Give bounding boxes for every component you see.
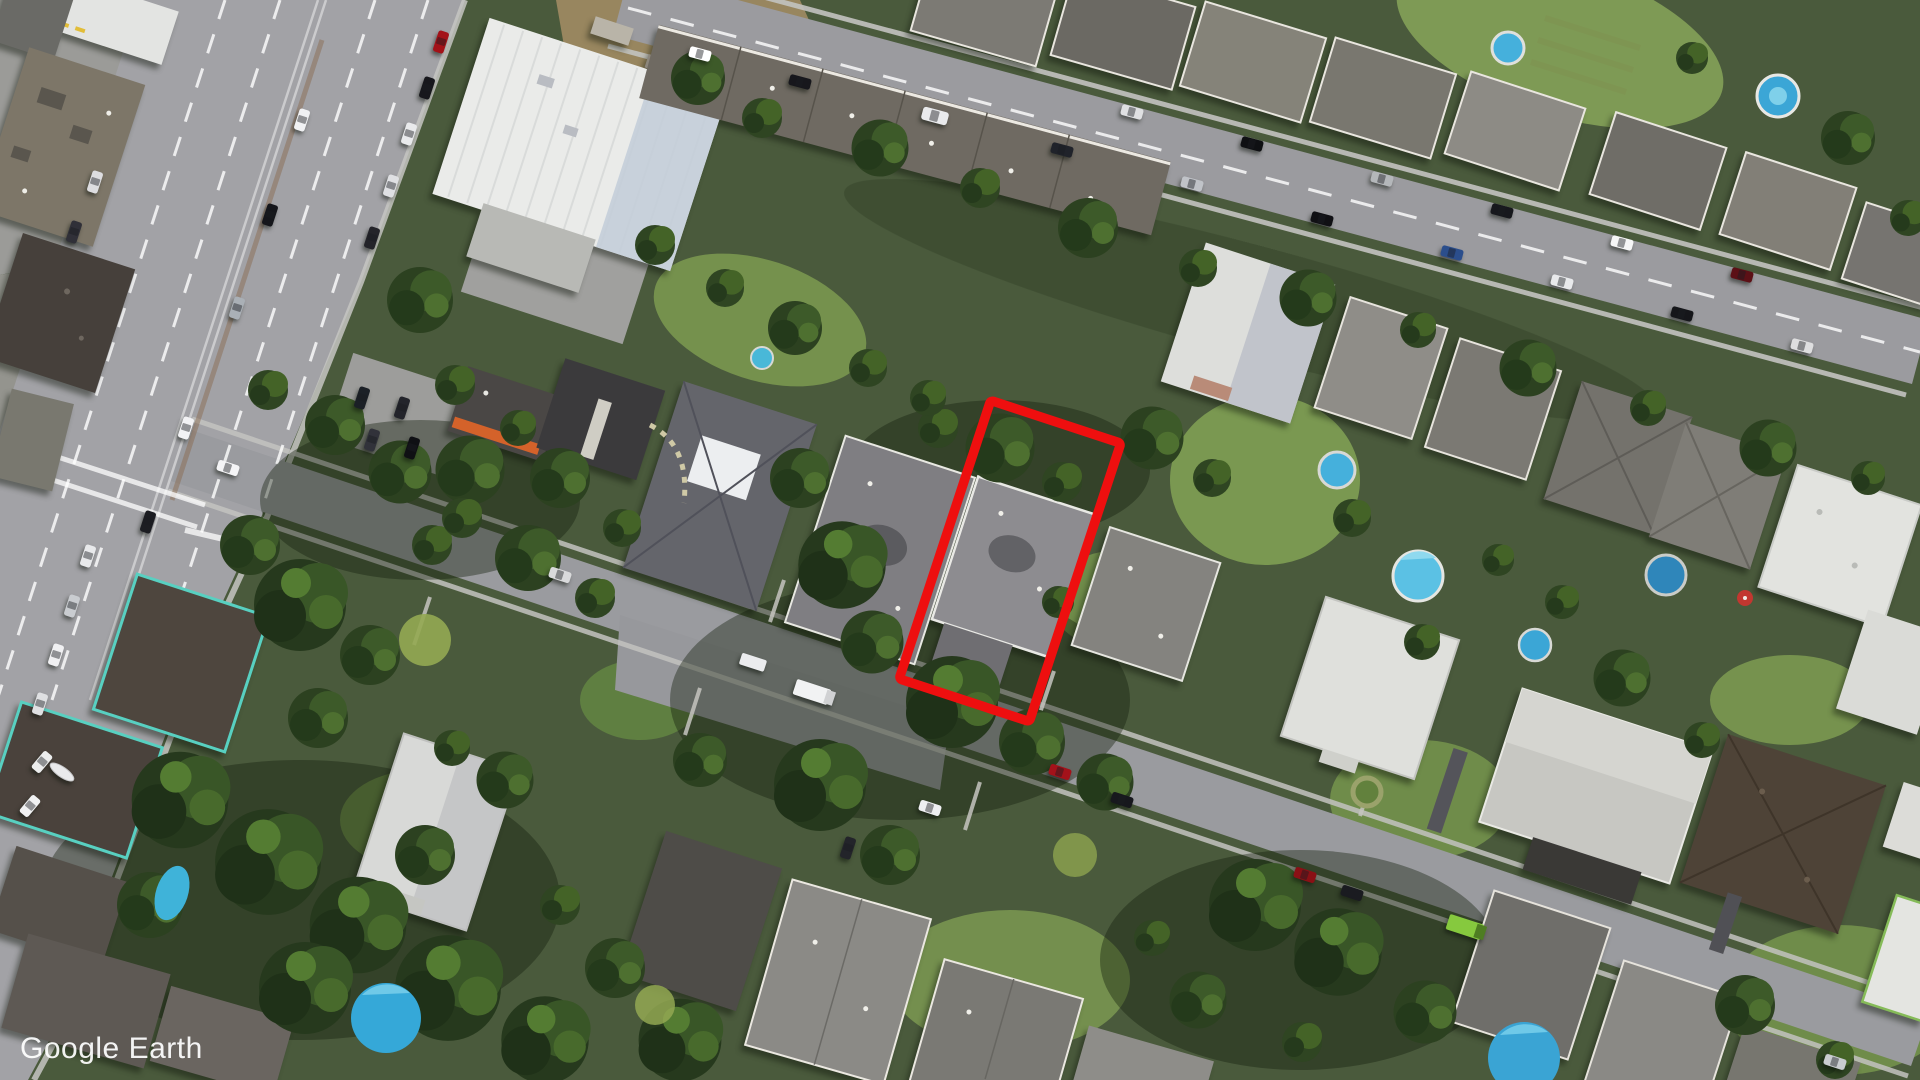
pool xyxy=(1646,555,1686,595)
pool xyxy=(1492,32,1524,64)
map-canvas[interactable]: Google Earth xyxy=(0,0,1920,1080)
pool xyxy=(1519,629,1551,661)
google-earth-watermark: Google Earth xyxy=(20,1032,203,1066)
aerial-imagery xyxy=(0,0,1920,1080)
pool xyxy=(751,347,773,369)
pool xyxy=(1319,452,1355,488)
